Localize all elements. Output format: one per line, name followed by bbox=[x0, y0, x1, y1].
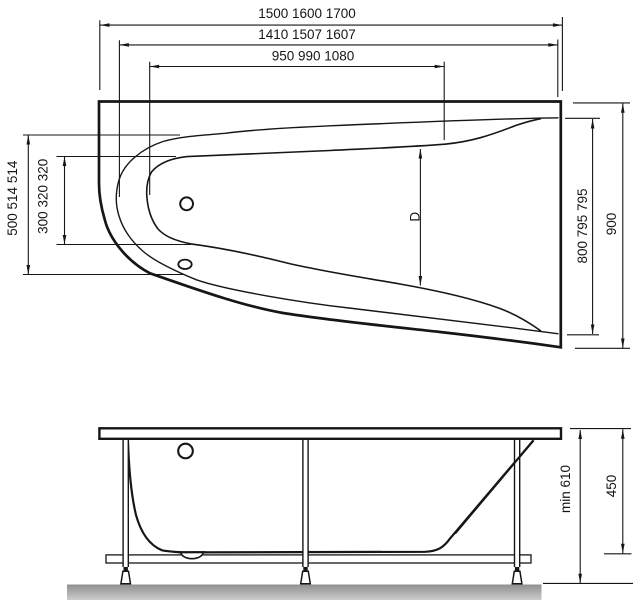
svg-text:500 514 514: 500 514 514 bbox=[5, 160, 20, 236]
svg-text:800 795 795: 800 795 795 bbox=[575, 188, 590, 263]
svg-text:900: 900 bbox=[604, 213, 619, 236]
svg-text:450: 450 bbox=[604, 475, 619, 498]
svg-text:950 990 1080: 950 990 1080 bbox=[272, 49, 355, 64]
svg-text:1500 1600 1700: 1500 1600 1700 bbox=[258, 6, 356, 21]
svg-text:min 610: min 610 bbox=[558, 465, 573, 513]
svg-text:300 320 320: 300 320 320 bbox=[35, 159, 50, 234]
svg-text:1410 1507 1607: 1410 1507 1607 bbox=[258, 27, 356, 42]
